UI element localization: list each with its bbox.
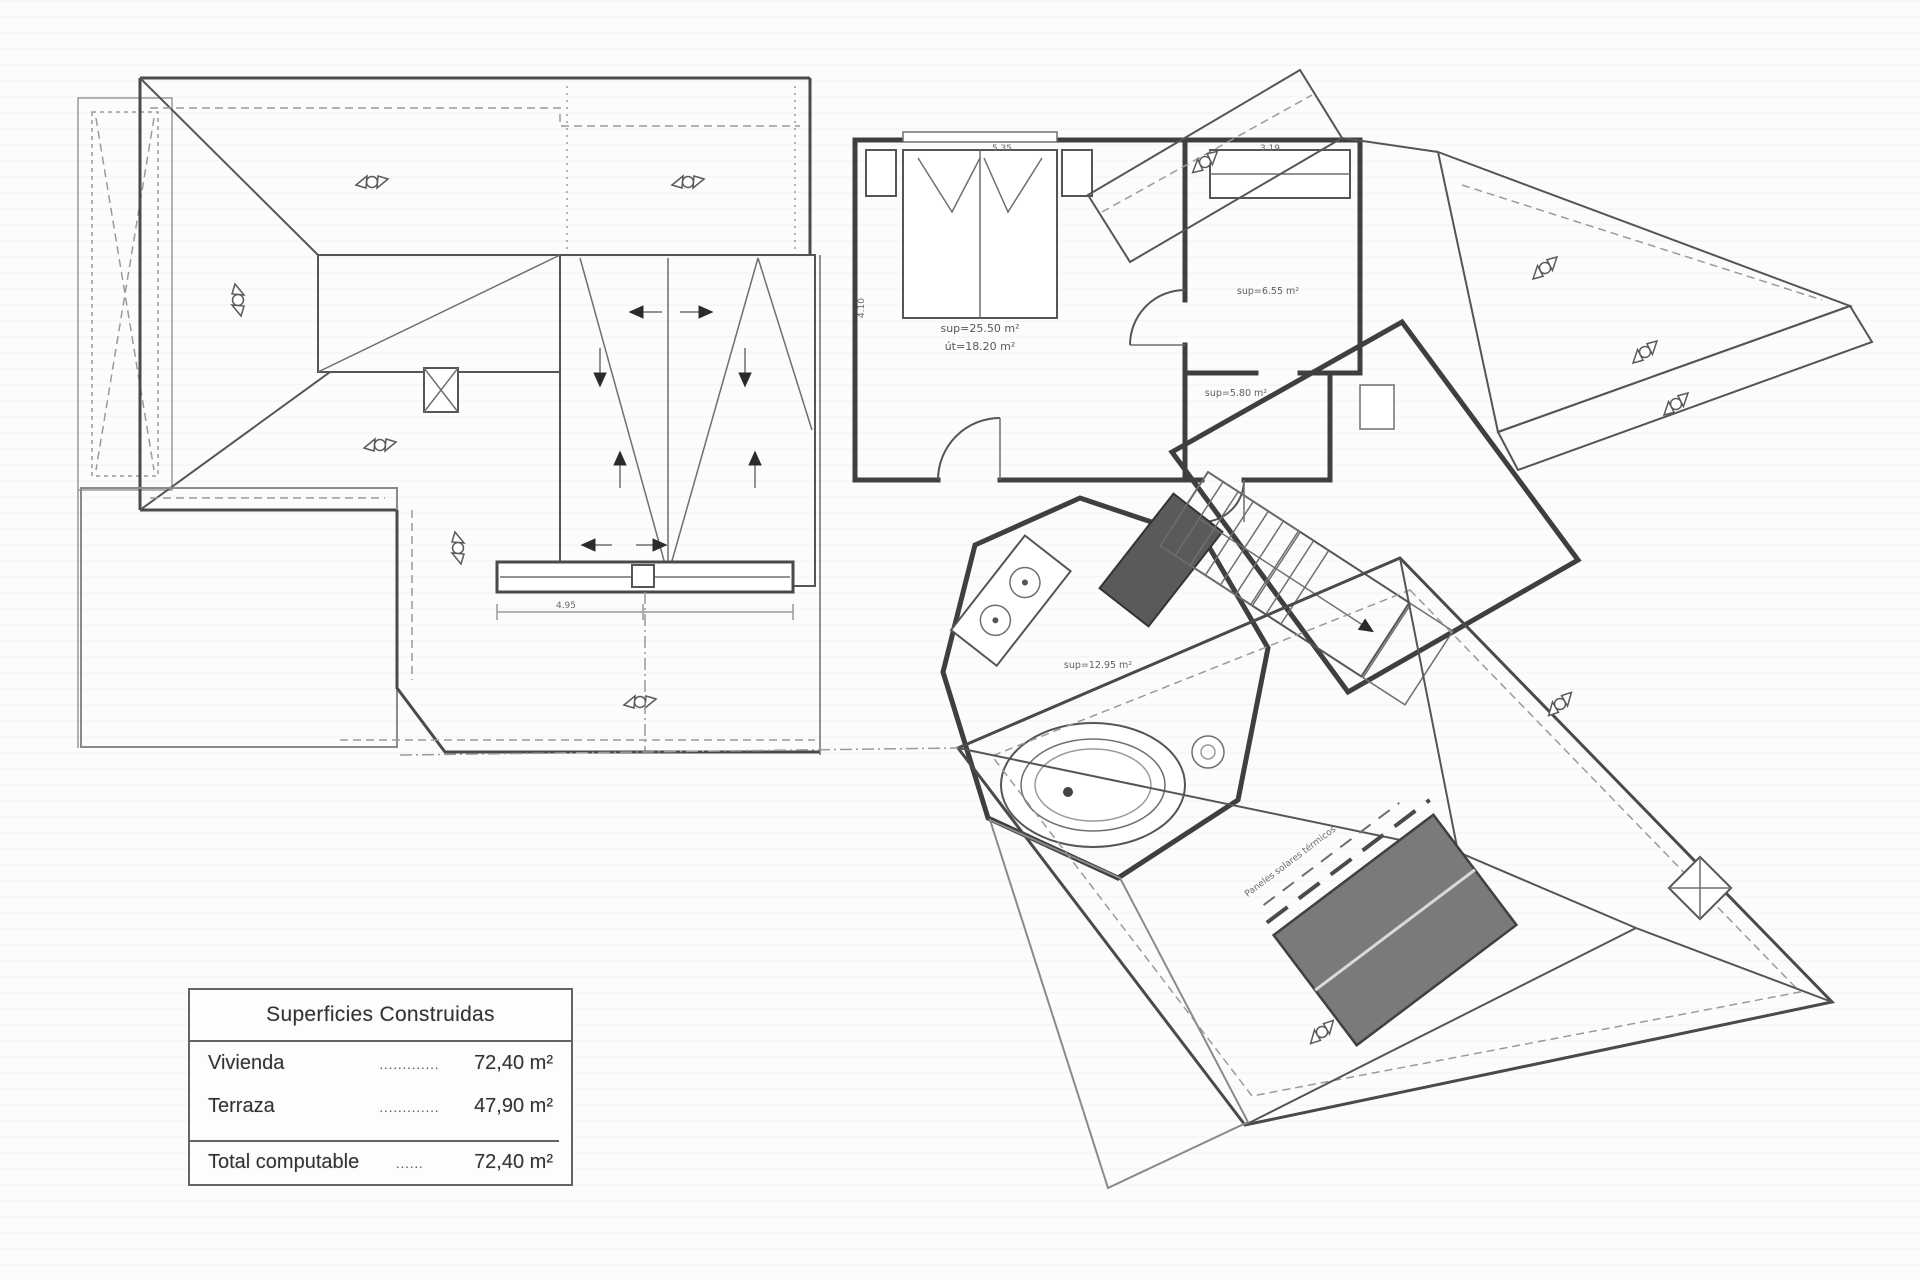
legend-row-vivienda: Vivienda ............. 72,40 m² — [208, 1052, 553, 1095]
pergola-beam-band — [318, 255, 560, 372]
shower-block — [1100, 494, 1223, 627]
terrace-window-band: 4.95 — [497, 562, 793, 752]
roof-vent-icon — [624, 696, 656, 708]
floor-plan-page: 4.95 — [0, 0, 1920, 1280]
door-swing — [938, 418, 1000, 480]
legend-row-value: 72,40 m² — [461, 1052, 553, 1075]
terrace-width-dimension: 4.95 — [556, 601, 576, 611]
bedroom-depth-dimension: 4.10 — [857, 298, 867, 318]
legend-separator — [190, 1140, 559, 1142]
nightstand — [866, 150, 896, 196]
roof-vent-icon — [672, 176, 704, 188]
legend-total-value: 72,40 m² — [461, 1151, 553, 1174]
legend-total-label: Total computable — [208, 1151, 396, 1174]
nightstand — [1062, 150, 1092, 196]
left-wing-roof: 4.95 — [78, 78, 820, 755]
bed — [903, 150, 1057, 318]
legend-total-leader: ...... — [396, 1156, 461, 1171]
legend-row-label: Vivienda — [208, 1052, 358, 1075]
roof-vent-icon — [364, 439, 396, 451]
legend-title: Superficies Construidas — [190, 990, 571, 1042]
roof-vent-icon — [452, 532, 464, 564]
legend-row-terraza: Terraza ............. 47,90 m² — [208, 1095, 553, 1138]
bedroom-area-label: sup=25.50 m² — [940, 322, 1019, 335]
legend-total-row: Total computable ...... 72,40 m² — [190, 1151, 571, 1174]
hatched-terrace — [560, 255, 815, 586]
hall-area-label: sup=5.80 m² — [1205, 388, 1267, 399]
dressing-area-label: sup=6.55 m² — [1237, 286, 1299, 297]
north-east-roofs — [1088, 70, 1872, 470]
bedroom-width-dimension: 5.35 — [992, 144, 1012, 154]
areas-legend-table: Superficies Construidas Vivienda .......… — [188, 988, 573, 1186]
bedroom-useful-area-label: út=18.20 m² — [945, 340, 1016, 353]
lower-roof-section — [340, 255, 820, 755]
roof-vent-icon — [356, 176, 388, 188]
roof-vent-icon — [232, 284, 244, 316]
legend-row-leader: ............. — [358, 1100, 461, 1115]
bedroom-window — [903, 132, 1057, 142]
door-swing — [1130, 290, 1185, 345]
legend-row-leader: ............. — [358, 1057, 461, 1072]
south-east-roof: Paneles solares térmicos — [400, 558, 1832, 1188]
legend-row-value: 47,90 m² — [461, 1095, 553, 1118]
bathroom-area-label: sup=12.95 m² — [1064, 660, 1132, 671]
legend-row-label: Terraza — [208, 1095, 358, 1118]
roof-vent-icon — [1543, 690, 1576, 718]
chimney — [424, 368, 458, 412]
lower-terrace-outline — [81, 488, 397, 747]
double-sink-counter — [951, 535, 1071, 665]
